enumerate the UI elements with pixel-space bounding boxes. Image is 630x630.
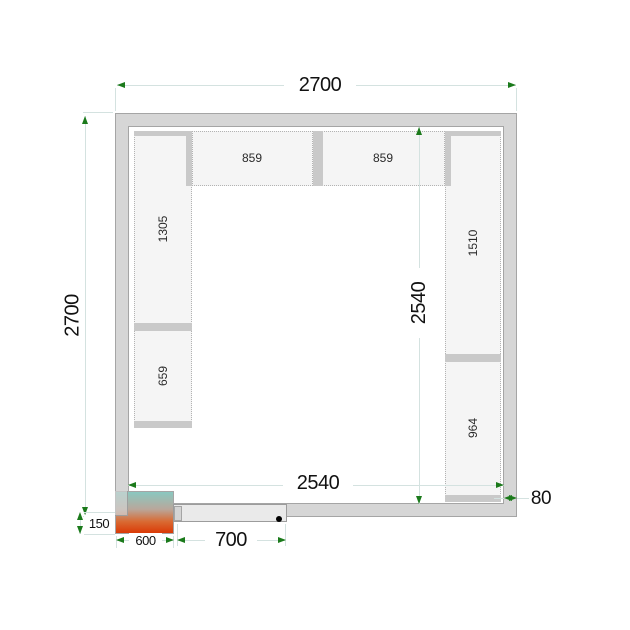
shelf-bar-right-top bbox=[445, 131, 501, 136]
arrow-inner-right-icon bbox=[496, 482, 504, 488]
ext-line-top-right bbox=[516, 88, 517, 111]
shelf-bar-right-corner bbox=[445, 131, 451, 186]
door-panel bbox=[173, 504, 287, 522]
shelf-bar-left-bottom bbox=[134, 421, 192, 428]
arrow-150-bottom-icon bbox=[77, 526, 83, 534]
shelf-label-right-upper: 1510 bbox=[466, 221, 480, 265]
shelf-bar-right-bottom bbox=[445, 495, 501, 502]
door-pivot-dot bbox=[276, 516, 282, 522]
ext-line-top-left bbox=[115, 88, 116, 111]
shelf-bar-left-divider bbox=[134, 323, 192, 331]
arrow-150-top-icon bbox=[77, 512, 83, 520]
dimension-text-outer-depth: 2700 bbox=[62, 280, 83, 352]
dimension-text-outer-width: 2700 bbox=[284, 74, 356, 95]
shelf-bar-left-corner bbox=[186, 131, 192, 186]
dim-80-stub-left bbox=[494, 498, 504, 499]
door-frame-post bbox=[174, 506, 182, 521]
dimension-text-unit-protrusion: 150 bbox=[84, 516, 114, 531]
arrow-700-right-icon bbox=[278, 537, 286, 543]
shelf-label-left-upper: 1305 bbox=[156, 207, 170, 251]
wall-corner-overlay bbox=[115, 491, 128, 516]
shelf-label-left-lower: 659 bbox=[156, 354, 170, 398]
shelf-bar-top-divider bbox=[313, 131, 323, 186]
ext-line-left-top bbox=[83, 112, 113, 113]
arrow-left-top-icon bbox=[82, 116, 88, 124]
shelf-bar-left-top bbox=[134, 131, 192, 136]
dim-150-line-top bbox=[84, 512, 115, 513]
arrow-top-right-icon bbox=[508, 82, 516, 88]
dimension-text-inner-depth: 2540 bbox=[409, 268, 429, 338]
dim-150-line-bottom bbox=[84, 534, 115, 535]
arrow-top-left-icon bbox=[117, 82, 125, 88]
shelf-label-right-lower: 964 bbox=[466, 406, 480, 450]
dimension-text-wall-thickness: 80 bbox=[527, 489, 555, 508]
arrow-inner-bottom-icon bbox=[416, 496, 422, 504]
shelf-label-top-left: 859 bbox=[232, 151, 272, 165]
shelf-label-top-right: 859 bbox=[363, 151, 403, 165]
arrow-wall-right-icon bbox=[509, 495, 517, 501]
dimension-text-inner-width: 2540 bbox=[283, 473, 353, 493]
cold-room-floor-plan: 859 859 1305 659 1510 964 2700 2700 2540… bbox=[0, 0, 630, 630]
arrow-700-left-icon bbox=[177, 537, 185, 543]
dimension-line-left bbox=[85, 116, 86, 515]
arrow-600-right-icon bbox=[166, 537, 174, 543]
arrow-inner-top-icon bbox=[416, 127, 422, 135]
arrow-600-left-icon bbox=[116, 537, 124, 543]
dimension-text-door-width: 700 bbox=[205, 529, 257, 550]
arrow-inner-left-icon bbox=[128, 482, 136, 488]
shelf-bar-right-divider bbox=[445, 354, 501, 362]
dimension-text-unit-width: 600 bbox=[129, 533, 162, 548]
